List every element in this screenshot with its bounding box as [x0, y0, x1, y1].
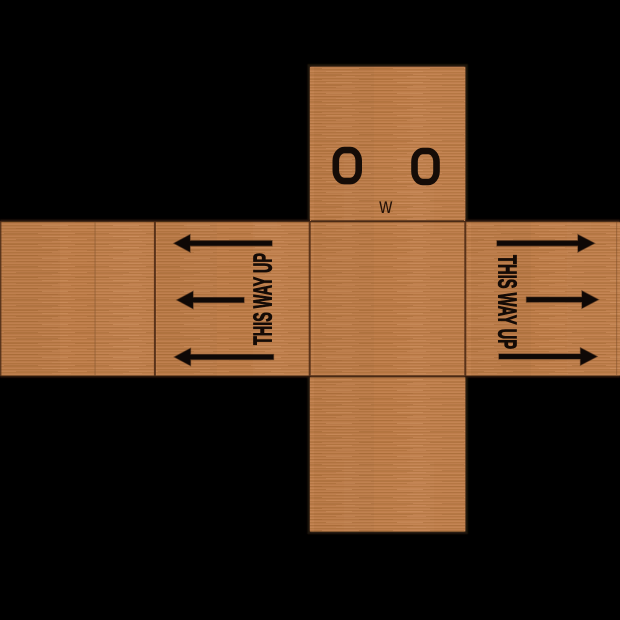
svg-text:THIS WAY UP: THIS WAY UP — [493, 255, 523, 349]
svg-text:w: w — [378, 193, 392, 218]
svg-text:THIS WAY UP: THIS WAY UP — [248, 253, 278, 345]
